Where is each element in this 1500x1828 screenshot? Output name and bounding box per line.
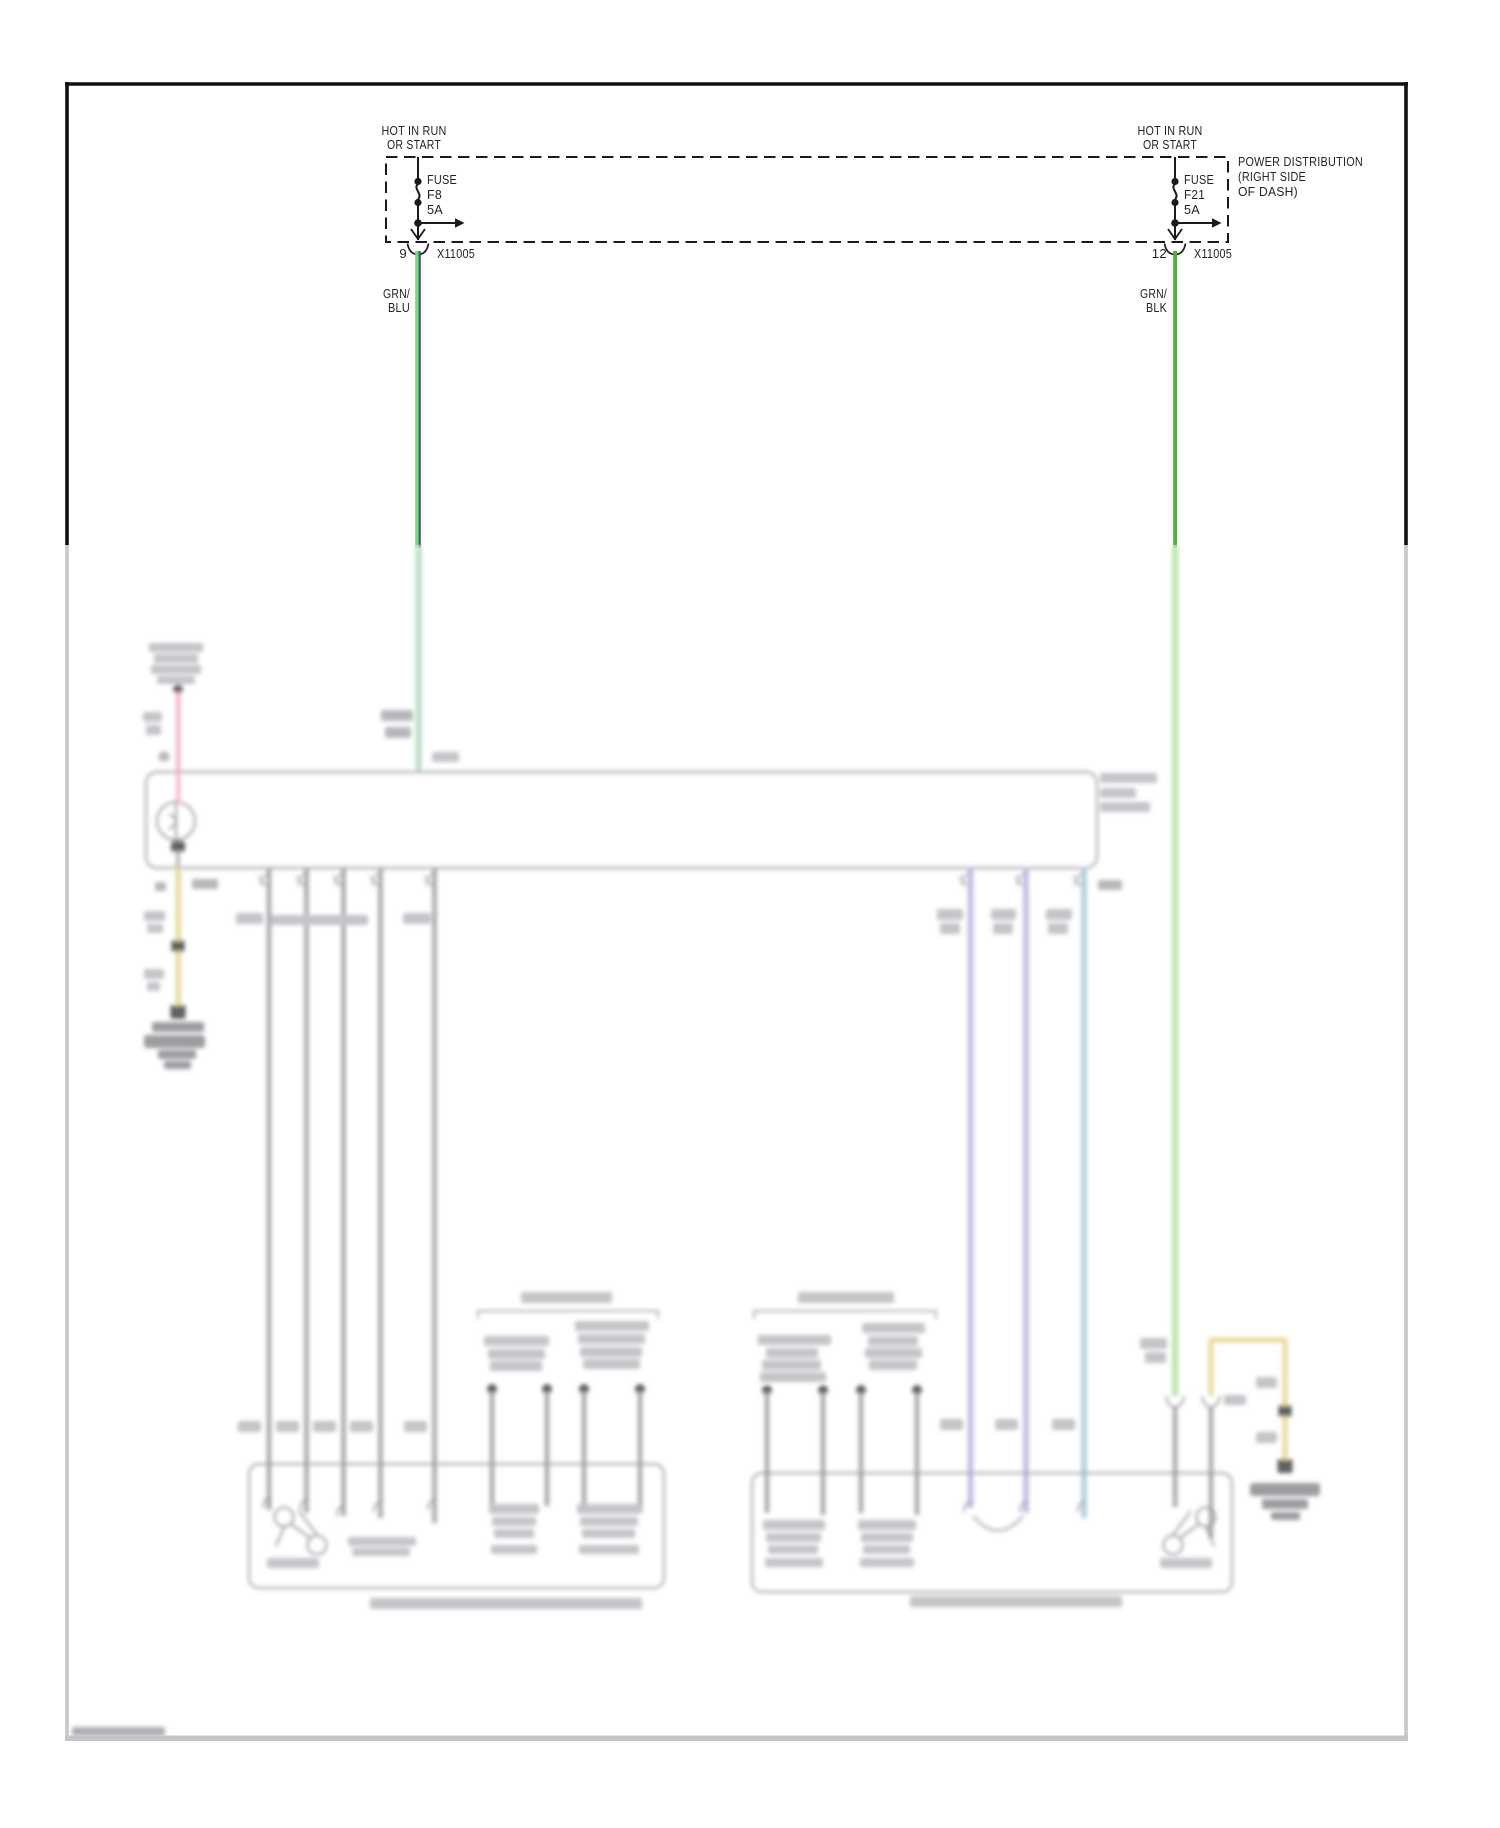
svg-text:POWER DISTRIBUTION: POWER DISTRIBUTION <box>1238 154 1363 169</box>
svg-text:GRN/: GRN/ <box>1140 286 1167 301</box>
svg-text:FUSE: FUSE <box>1184 172 1214 187</box>
svg-text:BLK: BLK <box>1146 300 1167 315</box>
svg-text:5A: 5A <box>427 202 443 217</box>
svg-text:F21: F21 <box>1184 187 1205 202</box>
svg-text:F8: F8 <box>427 187 442 202</box>
svg-text:OR START: OR START <box>387 137 441 152</box>
svg-text:OR START: OR START <box>1143 137 1197 152</box>
svg-text:X11005: X11005 <box>1194 246 1232 261</box>
svg-text:(RIGHT SIDE: (RIGHT SIDE <box>1238 169 1306 184</box>
svg-text:X11005: X11005 <box>437 246 475 261</box>
svg-text:GRN/: GRN/ <box>383 286 410 301</box>
svg-text:BLU: BLU <box>388 300 410 315</box>
svg-text:HOT IN RUN: HOT IN RUN <box>382 123 447 138</box>
svg-text:12: 12 <box>1152 246 1167 261</box>
svg-text:HOT IN RUN: HOT IN RUN <box>1138 123 1203 138</box>
svg-text:9: 9 <box>399 246 407 261</box>
svg-text:OF DASH): OF DASH) <box>1238 184 1298 199</box>
svg-text:5A: 5A <box>1184 202 1200 217</box>
svg-text:FUSE: FUSE <box>427 172 457 187</box>
